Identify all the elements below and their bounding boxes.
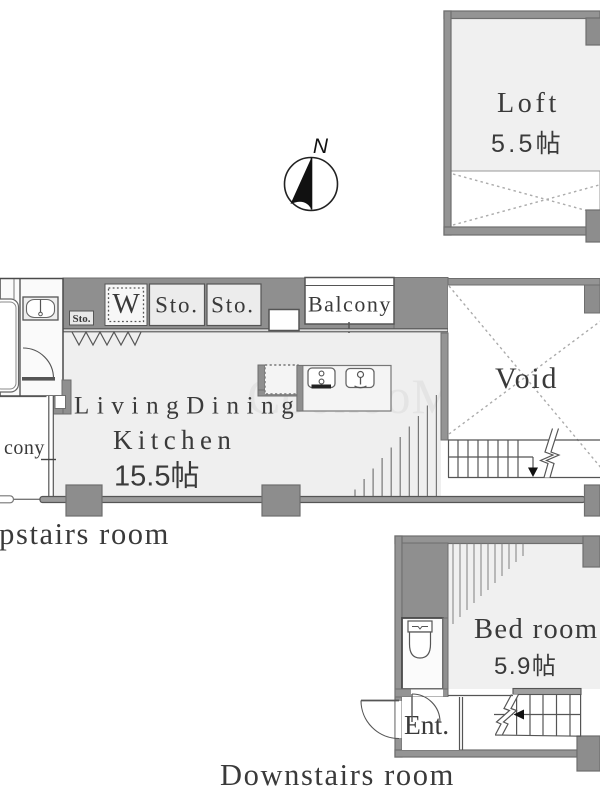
svg-text:cony: cony: [4, 437, 45, 459]
svg-text:5.5帖: 5.5帖: [491, 130, 564, 158]
svg-text:Sto.: Sto.: [72, 313, 90, 325]
svg-text:Sto.: Sto.: [211, 293, 255, 318]
svg-text:N: N: [313, 135, 329, 158]
svg-text:Kitchen: Kitchen: [113, 425, 236, 455]
svg-text:Balcony: Balcony: [308, 292, 392, 317]
svg-text:Void: Void: [495, 362, 558, 395]
svg-text:15.5帖: 15.5帖: [114, 460, 199, 493]
svg-text:Loft: Loft: [497, 88, 560, 119]
svg-text:Sto.: Sto.: [155, 293, 199, 318]
svg-text:5.9帖: 5.9帖: [494, 653, 557, 680]
svg-text:Upstairs room: Upstairs room: [0, 517, 170, 551]
svg-text:Ent.: Ent.: [404, 709, 449, 740]
svg-text:W: W: [112, 288, 140, 320]
svg-text:Bed room: Bed room: [474, 614, 598, 645]
svg-text:Downstairs room: Downstairs room: [220, 758, 455, 792]
svg-text:LivingDining: LivingDining: [74, 393, 301, 420]
